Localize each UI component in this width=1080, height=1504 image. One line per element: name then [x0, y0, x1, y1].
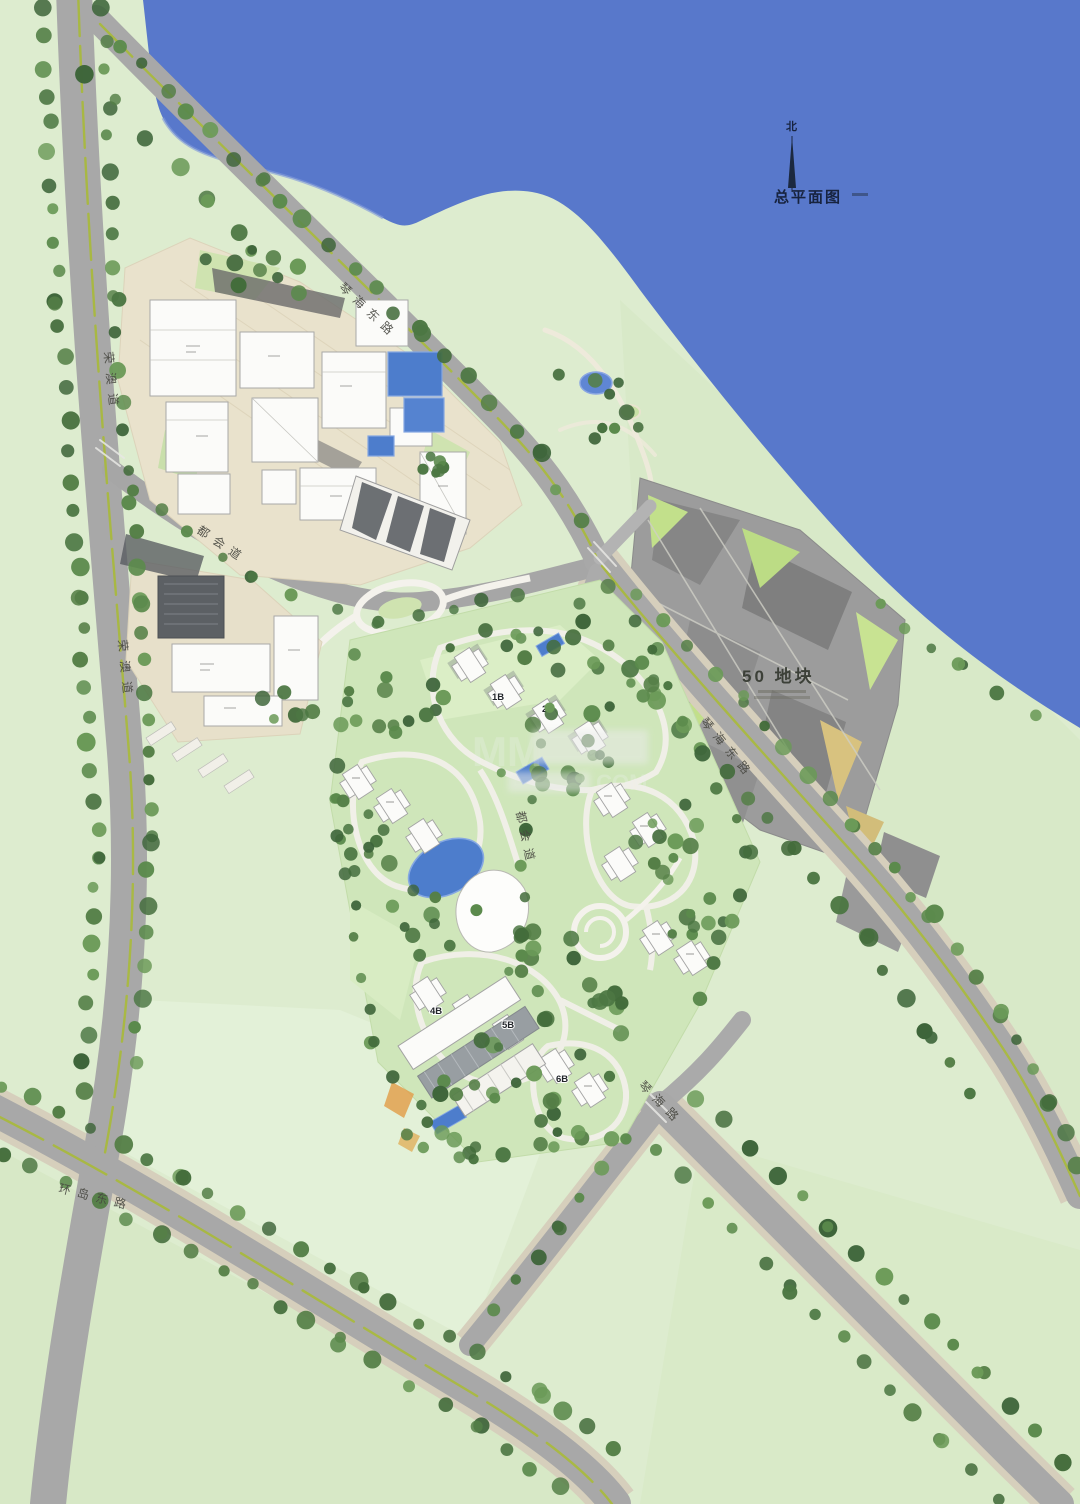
tree — [710, 782, 722, 794]
tree — [78, 995, 93, 1010]
tree — [274, 1300, 288, 1314]
tree — [743, 845, 758, 860]
tree — [429, 918, 440, 929]
watermark-blur-2 — [508, 772, 590, 792]
tree — [544, 703, 554, 713]
tree — [635, 656, 649, 670]
tree — [143, 774, 154, 785]
tree — [838, 1330, 850, 1342]
plot50-subtext-line — [754, 696, 810, 699]
tree — [247, 245, 257, 255]
tree — [365, 1004, 376, 1015]
tree — [137, 130, 153, 146]
tree — [516, 949, 528, 961]
tree — [22, 1158, 38, 1174]
tree — [648, 818, 658, 828]
tree — [1057, 1124, 1074, 1141]
tree — [437, 348, 452, 363]
tree — [356, 973, 366, 983]
tree — [379, 1293, 396, 1310]
tree — [469, 1344, 485, 1360]
tree — [172, 158, 190, 176]
tree — [527, 795, 536, 804]
tree — [552, 1477, 570, 1495]
tree — [321, 238, 336, 253]
tree — [109, 326, 121, 338]
tree — [53, 265, 65, 277]
tree — [372, 719, 386, 733]
tree — [293, 209, 312, 228]
tree — [62, 411, 80, 429]
tree — [964, 1088, 976, 1100]
tree — [181, 525, 193, 537]
tree — [432, 464, 445, 477]
tree — [674, 1166, 691, 1183]
tree — [386, 900, 399, 913]
tree — [619, 404, 635, 420]
tree — [145, 802, 159, 816]
tree — [533, 626, 543, 636]
tree — [333, 717, 348, 732]
tree — [927, 644, 937, 654]
tree — [599, 990, 615, 1006]
tree — [143, 746, 155, 758]
tree — [98, 63, 109, 74]
tree — [762, 812, 774, 824]
tree — [720, 764, 735, 779]
building-label-5b: 5B — [502, 1020, 514, 1031]
tree — [877, 965, 888, 976]
tree — [550, 484, 561, 495]
tree — [857, 1354, 872, 1369]
building-label-6b: 6B — [556, 1074, 568, 1085]
tree — [579, 1418, 595, 1434]
tree — [71, 590, 87, 606]
tree — [822, 1221, 833, 1232]
tree — [615, 996, 628, 1009]
tree — [947, 1339, 959, 1351]
tree — [342, 696, 353, 707]
tree — [583, 705, 600, 722]
tree — [677, 716, 688, 727]
tree — [401, 1129, 413, 1141]
tree — [85, 794, 101, 810]
tree — [273, 194, 288, 209]
tree — [537, 1012, 553, 1028]
tree — [553, 1402, 572, 1421]
tree — [136, 58, 147, 69]
tree — [667, 929, 677, 939]
tree — [470, 904, 482, 916]
tree — [500, 1371, 511, 1382]
tree — [75, 65, 94, 84]
tree — [81, 1027, 98, 1044]
plan-title: 总平面图 — [774, 188, 842, 206]
tree — [106, 227, 119, 240]
tree — [85, 1123, 96, 1134]
tree — [344, 686, 354, 696]
tree — [79, 622, 91, 634]
tree — [343, 824, 354, 835]
tree — [759, 721, 770, 732]
tree — [711, 930, 726, 945]
tree — [201, 194, 215, 208]
tree — [474, 593, 488, 607]
tree — [797, 1190, 808, 1201]
tree — [952, 657, 965, 670]
tree — [663, 681, 672, 690]
tree — [83, 935, 101, 953]
site-plan-canvas: 1B 2B 4B 5B 6B 北 总平面图 50 地块 琴海东路 琴海东路 琴海… — [0, 0, 1080, 1504]
tree — [489, 1093, 500, 1104]
tree — [510, 629, 521, 640]
tree — [349, 932, 359, 942]
tree — [522, 1462, 537, 1477]
tree — [707, 956, 721, 970]
tree — [526, 1066, 542, 1082]
tree — [708, 667, 723, 682]
tree — [769, 1167, 787, 1185]
tree — [331, 829, 344, 842]
tree — [553, 1127, 563, 1137]
tree — [629, 615, 642, 628]
tree — [454, 1151, 466, 1163]
tree — [905, 892, 916, 903]
tree — [647, 645, 657, 655]
tree — [127, 485, 139, 497]
tree — [247, 1278, 258, 1289]
tree — [604, 1131, 619, 1146]
tree — [65, 533, 83, 551]
tree — [358, 1282, 369, 1293]
tree — [416, 1100, 426, 1110]
plot50-label: 50 地块 — [742, 666, 815, 686]
tree — [71, 558, 90, 577]
tree — [439, 1397, 454, 1412]
tree — [628, 835, 643, 850]
tree — [533, 1137, 547, 1151]
tree — [133, 595, 150, 612]
tree — [138, 861, 154, 877]
dark-tower — [158, 576, 224, 638]
tree — [656, 613, 670, 627]
tree — [687, 1090, 704, 1107]
tree — [588, 373, 603, 388]
tree — [256, 174, 269, 187]
tree — [637, 689, 650, 702]
tree — [470, 1141, 481, 1152]
tree — [101, 129, 112, 140]
tree — [72, 652, 88, 668]
tree — [140, 1153, 153, 1166]
tree — [668, 833, 684, 849]
tree — [139, 925, 154, 940]
tree — [515, 928, 530, 943]
tree — [351, 900, 361, 910]
tree — [272, 272, 283, 283]
tree — [389, 726, 402, 739]
tree — [330, 1337, 346, 1353]
tree — [534, 1114, 548, 1128]
tree — [269, 714, 279, 724]
tree — [446, 643, 455, 652]
tree — [77, 733, 96, 752]
tree — [574, 513, 590, 529]
tree — [553, 369, 565, 381]
tree — [363, 1351, 381, 1369]
tree — [876, 599, 886, 609]
tree — [897, 989, 916, 1008]
tree — [413, 949, 426, 962]
tree — [511, 1274, 521, 1284]
tree — [73, 1053, 89, 1069]
tree — [738, 690, 749, 701]
tree — [348, 648, 361, 661]
tree — [972, 1367, 984, 1379]
tree — [113, 40, 127, 54]
tree — [951, 943, 964, 956]
tree — [969, 970, 984, 985]
tree — [533, 444, 551, 462]
tree — [35, 61, 52, 78]
tree — [138, 653, 151, 666]
tree — [418, 1142, 429, 1153]
tree — [501, 1443, 514, 1456]
tree — [1054, 1454, 1071, 1471]
tree — [688, 921, 700, 933]
watermark-right: .COM — [590, 770, 647, 795]
tree — [594, 1161, 609, 1176]
tree — [136, 685, 152, 701]
tree — [1042, 1094, 1058, 1110]
tree — [563, 931, 579, 947]
tree — [437, 1074, 450, 1087]
tree — [633, 422, 644, 433]
watermark-left: MM — [472, 728, 542, 775]
tree — [701, 916, 716, 931]
tree — [876, 1268, 894, 1286]
tree — [344, 847, 358, 861]
tree — [42, 179, 57, 194]
tree — [504, 967, 513, 976]
scale-mark — [852, 193, 868, 196]
tree — [417, 464, 428, 475]
building-label-4b: 4B — [430, 1006, 442, 1017]
tree — [860, 928, 879, 947]
tree — [469, 1079, 480, 1090]
tree — [82, 763, 97, 778]
tree — [101, 35, 114, 48]
tree — [255, 691, 270, 706]
tree — [603, 640, 615, 652]
tree — [601, 579, 616, 594]
tree — [231, 224, 248, 241]
plot50-subtext-line — [758, 690, 806, 693]
tree — [262, 1222, 276, 1236]
tree — [809, 1309, 820, 1320]
tree — [76, 680, 91, 695]
tree — [531, 1250, 547, 1266]
tree — [461, 367, 477, 383]
tree — [471, 1421, 483, 1433]
tree — [899, 623, 910, 634]
tree — [378, 824, 390, 836]
tree — [92, 822, 107, 837]
tree — [202, 1188, 213, 1199]
tree — [787, 841, 801, 855]
tree — [487, 1303, 500, 1316]
tree — [630, 589, 642, 601]
tree — [605, 701, 615, 711]
tree — [742, 1140, 759, 1157]
tree — [324, 1263, 336, 1275]
tree — [184, 1244, 199, 1259]
tree — [121, 495, 136, 510]
tree — [1030, 710, 1042, 722]
tree — [430, 892, 442, 904]
tree — [546, 640, 561, 655]
tree — [364, 809, 374, 819]
tree — [626, 678, 635, 687]
tree — [24, 1088, 42, 1106]
tree — [965, 1463, 978, 1476]
tree — [130, 1056, 143, 1069]
tree — [571, 1125, 586, 1140]
tree — [106, 196, 120, 210]
tree — [899, 1294, 910, 1305]
tree — [285, 588, 298, 601]
tree — [548, 1141, 559, 1152]
tree — [582, 977, 597, 992]
tree — [50, 319, 64, 333]
tree — [474, 1032, 490, 1048]
tree — [230, 1205, 246, 1221]
tree — [994, 1004, 1009, 1019]
tree — [59, 380, 74, 395]
tree — [494, 1042, 503, 1051]
master-plan-svg: 1B 2B 4B 5B 6B 北 总平面图 50 地块 琴海东路 琴海东路 琴海… — [0, 0, 1080, 1504]
tree — [574, 598, 586, 610]
tree — [83, 711, 96, 724]
tree — [76, 1082, 94, 1100]
tree — [134, 626, 148, 640]
tree — [48, 296, 62, 310]
tree — [142, 714, 155, 727]
tree — [501, 640, 514, 653]
tree — [231, 277, 247, 293]
tree — [119, 1213, 133, 1227]
tree — [178, 103, 194, 119]
tree — [693, 992, 707, 1006]
tree — [377, 682, 393, 698]
tree — [613, 378, 623, 388]
tree — [525, 940, 541, 956]
tree — [155, 1227, 168, 1240]
tree — [93, 852, 105, 864]
tree — [413, 1319, 424, 1330]
watermark-blur-1 — [532, 730, 648, 764]
tree — [606, 1441, 621, 1456]
tree — [650, 1144, 662, 1156]
tree — [253, 263, 267, 277]
tree — [515, 965, 528, 978]
tree — [134, 990, 152, 1008]
tree — [532, 985, 544, 997]
tree — [128, 559, 145, 576]
tree — [349, 262, 362, 275]
tree — [848, 1245, 865, 1262]
tree — [443, 1330, 456, 1343]
tree — [782, 1285, 797, 1300]
tree — [176, 1170, 192, 1186]
tree — [297, 1311, 316, 1330]
tree — [613, 1025, 629, 1041]
tree — [597, 423, 607, 433]
tree — [369, 280, 384, 295]
tree — [511, 1078, 522, 1089]
tree — [681, 640, 693, 652]
tree — [1011, 1034, 1022, 1045]
tree — [868, 842, 881, 855]
tree — [363, 842, 374, 853]
tree — [715, 1111, 732, 1128]
tree — [52, 1106, 65, 1119]
tree — [565, 629, 581, 645]
tree — [759, 1257, 773, 1271]
tree — [921, 909, 935, 923]
tree — [293, 1241, 309, 1257]
tree — [727, 1223, 738, 1234]
tree — [1002, 1397, 1020, 1415]
tree — [1028, 1424, 1042, 1438]
tree — [703, 892, 716, 905]
tree — [1027, 1063, 1039, 1075]
tree — [380, 671, 392, 683]
tree — [884, 1384, 896, 1396]
tree — [934, 1434, 949, 1449]
tree — [332, 604, 343, 615]
tree — [226, 255, 243, 272]
tree — [105, 260, 120, 275]
tree — [478, 623, 493, 638]
tree — [86, 908, 102, 924]
tree — [510, 424, 524, 438]
tree — [63, 475, 79, 491]
tree — [689, 818, 704, 833]
tree — [845, 818, 858, 831]
tree — [291, 285, 307, 301]
tree — [386, 307, 400, 321]
tree — [156, 503, 169, 516]
tree — [329, 758, 345, 774]
tree — [604, 1071, 615, 1082]
tree — [296, 708, 309, 721]
tree — [161, 84, 176, 99]
tree — [87, 969, 99, 981]
tree — [495, 1147, 510, 1162]
tree — [248, 571, 258, 581]
tree — [800, 766, 818, 784]
tree — [142, 834, 160, 852]
tree — [277, 685, 291, 699]
tree — [534, 1387, 551, 1404]
tree — [202, 122, 218, 138]
tree — [511, 588, 525, 602]
tree — [47, 203, 58, 214]
tree — [47, 237, 59, 249]
tree — [587, 656, 600, 669]
tree — [115, 1135, 134, 1154]
